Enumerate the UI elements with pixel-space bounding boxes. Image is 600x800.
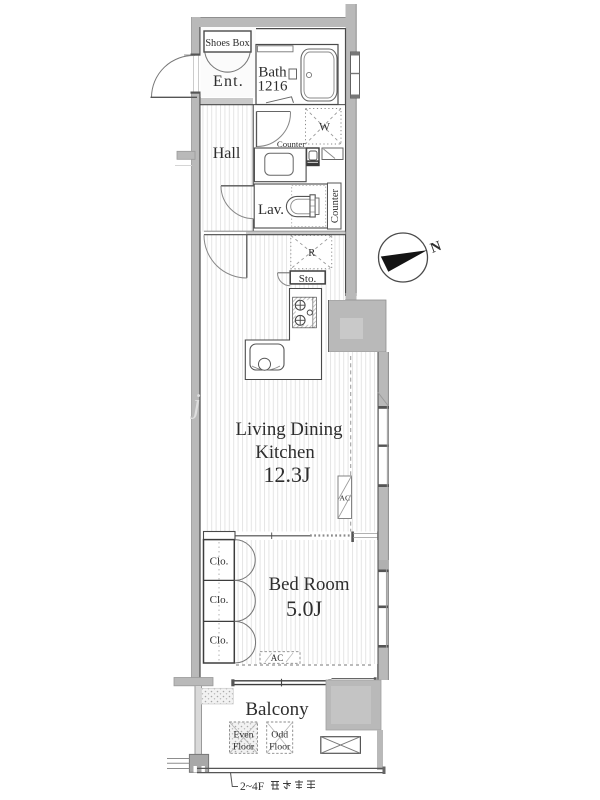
- svg-text:AC: AC: [339, 494, 350, 503]
- svg-text:2~4F: 2~4F: [240, 781, 264, 793]
- svg-text:Odd: Odd: [271, 730, 288, 741]
- svg-text:Living Dining: Living Dining: [236, 419, 344, 440]
- svg-text:Balcony: Balcony: [245, 699, 309, 720]
- svg-text:Counter: Counter: [330, 188, 341, 223]
- svg-text:Sto.: Sto.: [299, 273, 317, 285]
- svg-text:R: R: [308, 248, 315, 259]
- svg-text:W: W: [319, 122, 330, 134]
- svg-text:Bed Room: Bed Room: [269, 574, 350, 595]
- svg-text:1216: 1216: [258, 79, 289, 95]
- svg-text:Floor: Floor: [269, 742, 291, 753]
- svg-text:12.3J: 12.3J: [263, 462, 311, 487]
- svg-text:Clo.: Clo.: [210, 594, 229, 606]
- svg-text:5.0J: 5.0J: [286, 596, 323, 621]
- svg-text:Clo.: Clo.: [210, 556, 229, 568]
- svg-text:Kitchen: Kitchen: [255, 442, 315, 463]
- svg-text:Floor: Floor: [233, 742, 255, 753]
- svg-text:Shoes Box: Shoes Box: [205, 38, 250, 49]
- svg-text:Clo.: Clo.: [210, 635, 229, 647]
- svg-text:Even: Even: [233, 730, 253, 741]
- svg-text:Ent.: Ent.: [213, 73, 244, 90]
- svg-text:AC: AC: [271, 653, 284, 663]
- svg-text:Hall: Hall: [213, 145, 241, 162]
- svg-text:Lav.: Lav.: [258, 202, 284, 218]
